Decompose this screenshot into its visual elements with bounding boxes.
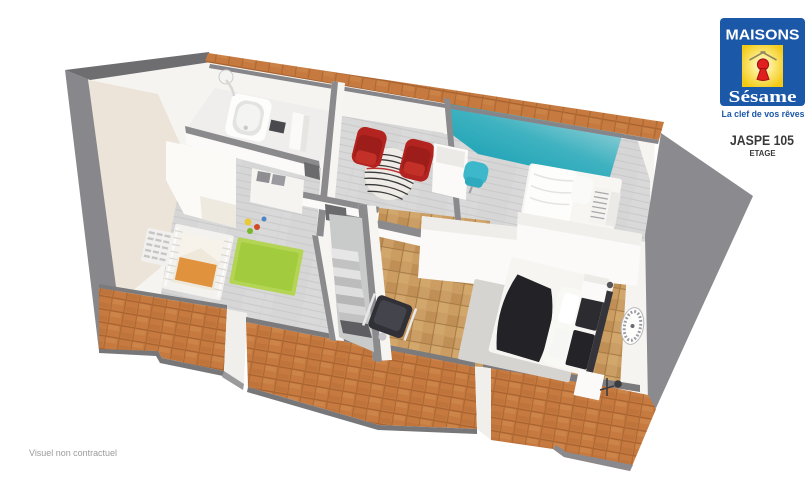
- svg-text:Visuel non contractuel: Visuel non contractuel: [29, 448, 117, 458]
- svg-text:Sésame: Sésame: [729, 87, 798, 106]
- svg-text:MAISONS: MAISONS: [726, 27, 800, 44]
- svg-text:JASPE 105: JASPE 105: [730, 133, 794, 148]
- svg-text:ETAGE: ETAGE: [750, 149, 777, 158]
- svg-text:La clef de vos rêves: La clef de vos rêves: [722, 109, 805, 120]
